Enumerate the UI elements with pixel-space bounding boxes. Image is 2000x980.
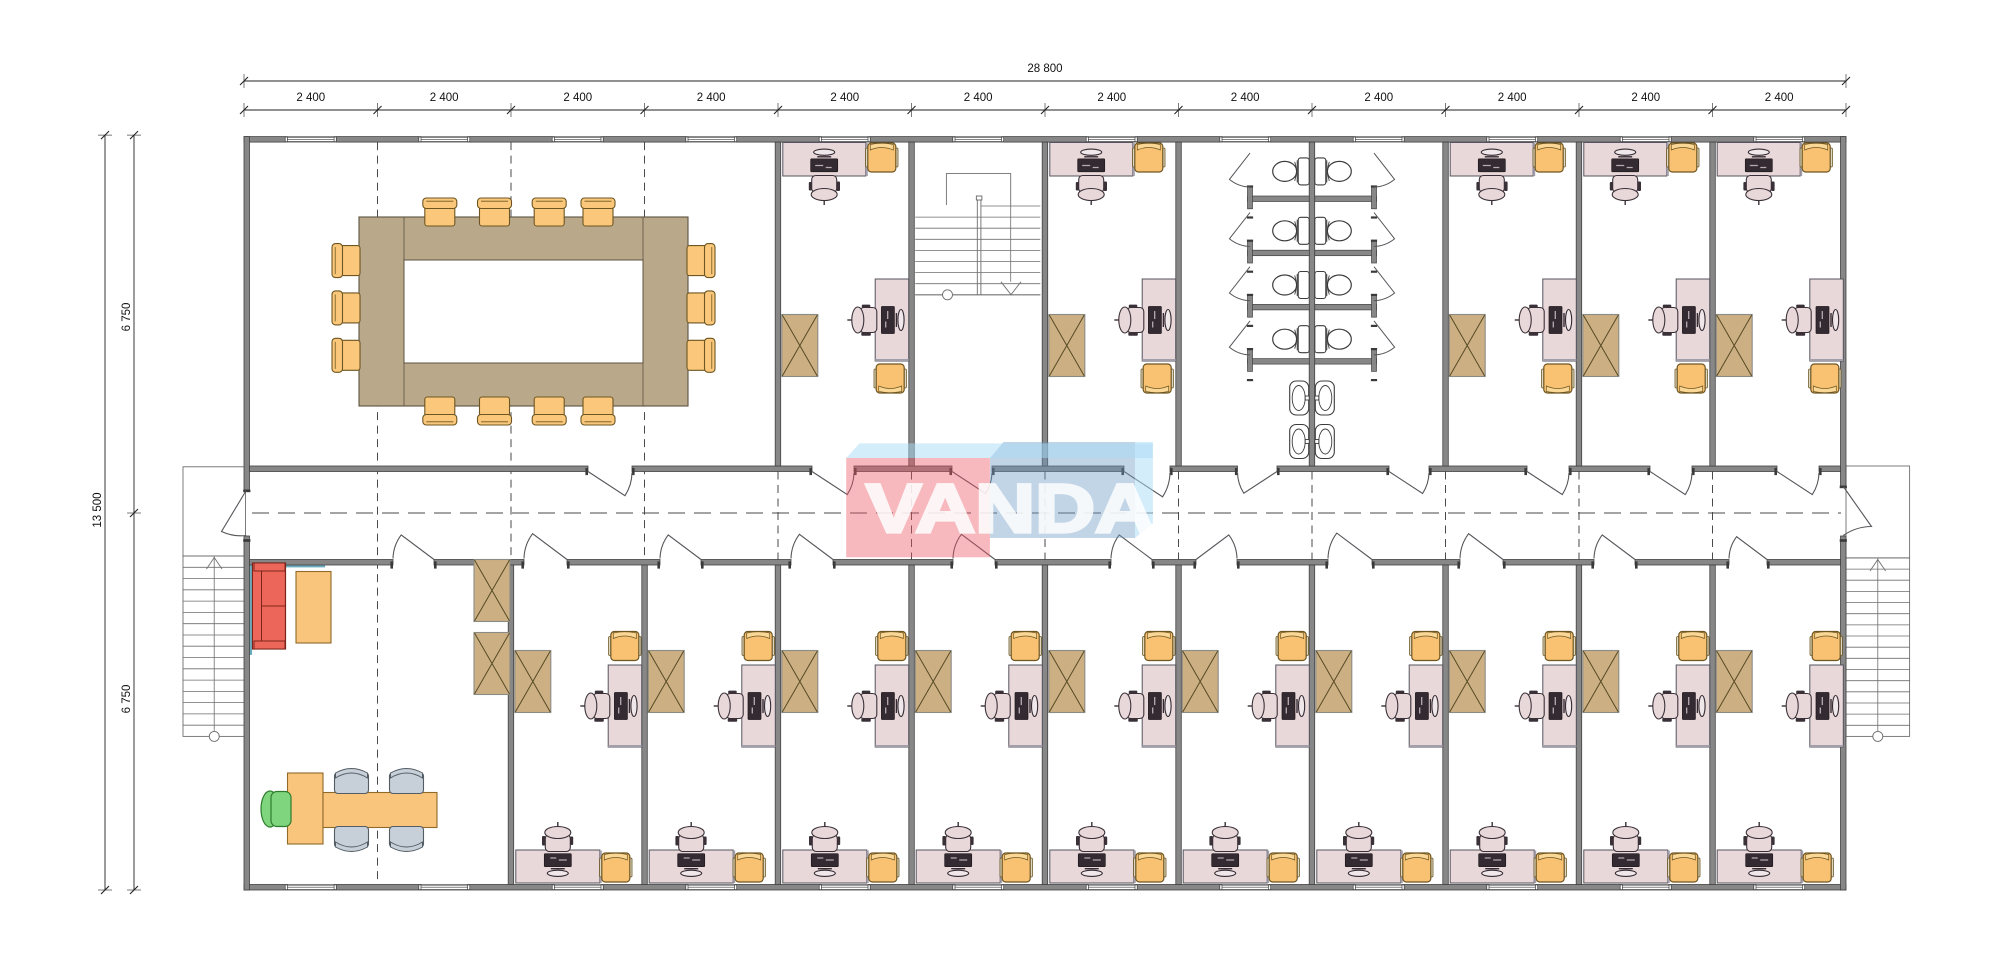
svg-text:2 400: 2 400 [1765,92,1794,104]
svg-text:2 400: 2 400 [964,92,993,104]
svg-text:2 400: 2 400 [697,92,726,104]
svg-text:2 400: 2 400 [430,92,459,104]
svg-text:13 500: 13 500 [92,492,104,527]
svg-text:2 400: 2 400 [830,92,859,104]
svg-text:2 400: 2 400 [1231,92,1260,104]
svg-text:6 750: 6 750 [121,685,133,714]
svg-text:6 750: 6 750 [121,303,133,332]
svg-text:VANDA: VANDA [866,470,1155,547]
svg-text:2 400: 2 400 [1097,92,1126,104]
svg-text:2 400: 2 400 [1364,92,1393,104]
svg-text:28 800: 28 800 [1027,63,1062,75]
svg-text:2 400: 2 400 [1631,92,1660,104]
svg-text:2 400: 2 400 [296,92,325,104]
svg-text:2 400: 2 400 [1498,92,1527,104]
svg-text:2 400: 2 400 [563,92,592,104]
